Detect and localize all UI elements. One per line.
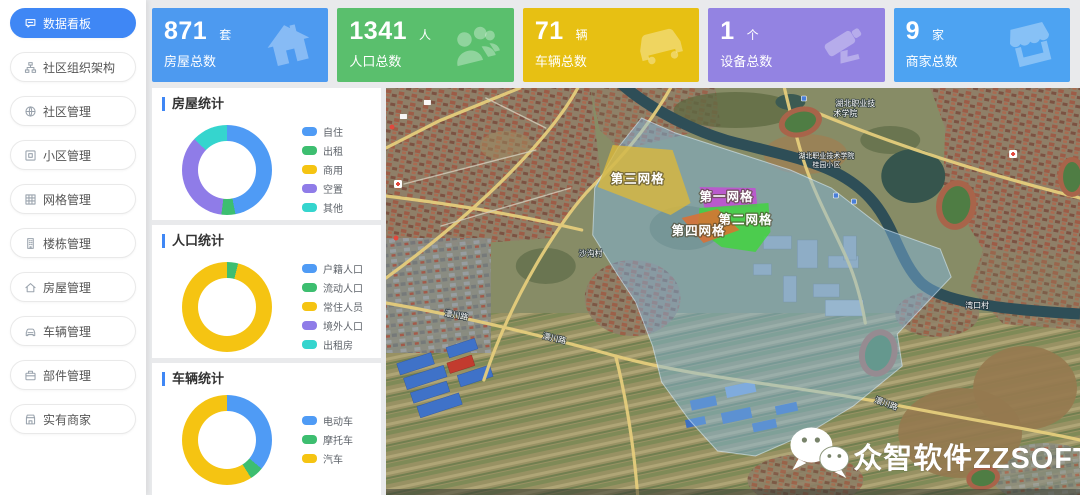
panel-title: 车辆统计 <box>162 372 371 386</box>
grid-icon <box>24 193 37 206</box>
stat-card-devices: 1个 设备总数 <box>708 8 884 82</box>
sidebar-item-label: 网格管理 <box>43 191 91 208</box>
place-label: 术学院 <box>833 108 857 118</box>
legend-swatch <box>302 146 317 155</box>
vehicle-legend: 电动车摩托车汽车 <box>302 409 353 470</box>
stat-value: 1341 <box>349 17 407 46</box>
legend-swatch <box>302 127 317 136</box>
legend-swatch <box>302 165 317 174</box>
component-icon <box>24 369 37 382</box>
poi-marker[interactable] <box>393 236 398 241</box>
poi-marker[interactable] <box>851 199 856 204</box>
sidebar-item-label: 房屋管理 <box>43 279 91 296</box>
legend-label: 出租房 <box>323 337 353 352</box>
panel-housing-stats: 房屋统计 自住出租商用空置其他 <box>152 88 381 220</box>
stat-value: 1 <box>720 17 734 46</box>
housing-donut-chart[interactable] <box>182 125 272 215</box>
stat-card-population: 1341人 人口总数 <box>337 8 513 82</box>
legend-swatch <box>302 340 317 349</box>
main: 871套 房屋总数 1341人 人口总数 71辆 车辆总数 1个 设备总数 9家… <box>146 0 1080 495</box>
sidebar-item-building[interactable]: 楼栋管理 <box>10 228 136 258</box>
stat-card-vehicles: 71辆 车辆总数 <box>523 8 699 82</box>
legend-label: 摩托车 <box>323 432 353 447</box>
place-label: 沙沟村 <box>579 248 603 258</box>
sidebar-item-component[interactable]: 部件管理 <box>10 360 136 390</box>
legend-item[interactable]: 汽车 <box>302 451 353 466</box>
sidebar-item-label: 数据看板 <box>43 15 91 32</box>
sidebar-item-estate[interactable]: 小区管理 <box>10 140 136 170</box>
legend-item[interactable]: 商用 <box>302 162 343 177</box>
legend-label: 出租 <box>323 143 343 158</box>
grid-label-4: 第四网格 <box>672 223 726 238</box>
legend-item[interactable]: 境外人口 <box>302 318 363 333</box>
legend-swatch <box>302 203 317 212</box>
legend-label: 自住 <box>323 124 343 139</box>
dashboard-icon <box>24 17 37 30</box>
population-legend: 户籍人口流动人口常住人员境外人口出租房 <box>302 257 363 356</box>
grid-label-2: 第二网格 <box>719 212 773 227</box>
legend-item[interactable]: 常住人员 <box>302 299 363 314</box>
org-structure-icon <box>24 61 37 74</box>
legend-item[interactable]: 自住 <box>302 124 343 139</box>
map-container[interactable]: 第三网格 第一网格 第二网格 第四网格 <box>386 88 1080 495</box>
vehicle-donut-chart[interactable] <box>182 395 272 485</box>
sidebar-item-dashboard[interactable]: 数据看板 <box>10 8 136 38</box>
sidebar-item-label: 部件管理 <box>43 367 91 384</box>
sidebar-item-merchant[interactable]: 实有商家 <box>10 404 136 434</box>
hospital-marker[interactable] <box>1009 150 1017 158</box>
legend-item[interactable]: 出租房 <box>302 337 363 352</box>
estate-icon <box>24 149 37 162</box>
content: 房屋统计 自住出租商用空置其他 人口统计 户籍人口流动人口常住人员境外人口出租房… <box>152 88 1080 495</box>
sidebar-item-label: 社区管理 <box>43 103 91 120</box>
grid-label-3: 第三网格 <box>611 171 665 186</box>
legend-label: 常住人员 <box>323 299 363 314</box>
legend-label: 其他 <box>323 200 343 215</box>
legend-label: 商用 <box>323 162 343 177</box>
stat-unit: 个 <box>747 26 759 43</box>
poi-marker[interactable] <box>833 193 838 198</box>
legend-item[interactable]: 出租 <box>302 143 343 158</box>
legend-swatch <box>302 416 317 425</box>
legend-swatch <box>302 454 317 463</box>
legend-label: 户籍人口 <box>323 261 363 276</box>
stat-value: 71 <box>535 17 564 46</box>
stat-value: 9 <box>906 17 920 46</box>
place-label: 桂园小区 <box>812 160 840 169</box>
panel-title: 人口统计 <box>162 234 371 248</box>
legend-swatch <box>302 264 317 273</box>
sidebar-item-label: 社区组织架构 <box>43 59 115 76</box>
legend-swatch <box>302 321 317 330</box>
stat-unit: 人 <box>419 26 431 43</box>
stat-unit: 套 <box>219 26 231 43</box>
legend-swatch <box>302 302 317 311</box>
stat-card-merchants: 9家 商家总数 <box>894 8 1070 82</box>
legend-label: 电动车 <box>323 413 353 428</box>
map-edge-shadow <box>386 489 1080 495</box>
legend-item[interactable]: 流动人口 <box>302 280 363 295</box>
poi-marker[interactable] <box>389 125 394 130</box>
building-icon <box>24 237 37 250</box>
place-label: 湖北职业技 <box>835 98 875 108</box>
hospital-marker[interactable] <box>394 180 402 188</box>
legend-swatch <box>302 184 317 193</box>
poi-marker[interactable] <box>801 96 806 101</box>
merchant-icon <box>24 413 37 426</box>
stat-cards: 871套 房屋总数 1341人 人口总数 71辆 车辆总数 1个 设备总数 9家… <box>152 8 1070 82</box>
legend-item[interactable]: 空置 <box>302 181 343 196</box>
poi-marker[interactable] <box>400 114 407 119</box>
sidebar-item-label: 小区管理 <box>43 147 91 164</box>
legend-swatch <box>302 283 317 292</box>
legend-item[interactable]: 户籍人口 <box>302 261 363 276</box>
map-svg: 第三网格 第一网格 第二网格 第四网格 <box>386 88 1080 495</box>
sidebar-item-label: 实有商家 <box>43 411 91 428</box>
house-icon <box>24 281 37 294</box>
sidebar-item-vehicle[interactable]: 车辆管理 <box>10 316 136 346</box>
poi-marker[interactable] <box>424 100 431 105</box>
place-label: 湖北职业技术学院 <box>798 151 854 160</box>
vehicle-icon <box>24 325 37 338</box>
sidebar-item-label: 车辆管理 <box>43 323 91 340</box>
panel-vehicle-stats: 车辆统计 电动车摩托车汽车 <box>152 363 381 495</box>
stat-unit: 家 <box>932 26 944 43</box>
sidebar-item-label: 楼栋管理 <box>43 235 91 252</box>
population-donut-chart[interactable] <box>182 262 272 352</box>
legend-label: 境外人口 <box>323 318 363 333</box>
grid-label-1: 第一网格 <box>700 189 754 204</box>
panel-title: 房屋统计 <box>162 97 371 111</box>
chart-panels: 房屋统计 自住出租商用空置其他 人口统计 户籍人口流动人口常住人员境外人口出租房… <box>152 88 381 495</box>
legend-swatch <box>302 435 317 444</box>
legend-label: 空置 <box>323 181 343 196</box>
place-label: 湾口村 <box>965 300 989 310</box>
legend-label: 汽车 <box>323 451 343 466</box>
housing-legend: 自住出租商用空置其他 <box>302 120 343 219</box>
stat-value: 871 <box>164 17 207 46</box>
panel-population-stats: 人口统计 户籍人口流动人口常住人员境外人口出租房 <box>152 225 381 357</box>
sidebar-item-community[interactable]: 社区管理 <box>10 96 136 126</box>
watermark-text: 众智软件ZZSOFT <box>853 442 1080 475</box>
sidebar-item-org[interactable]: 社区组织架构 <box>10 52 136 82</box>
stat-unit: 辆 <box>576 26 588 43</box>
community-icon <box>24 105 37 118</box>
sidebar-item-grid[interactable]: 网格管理 <box>10 184 136 214</box>
legend-item[interactable]: 电动车 <box>302 413 353 428</box>
stat-card-housing: 871套 房屋总数 <box>152 8 328 82</box>
legend-item[interactable]: 摩托车 <box>302 432 353 447</box>
sidebar-item-house[interactable]: 房屋管理 <box>10 272 136 302</box>
legend-item[interactable]: 其他 <box>302 200 343 215</box>
legend-label: 流动人口 <box>323 280 363 295</box>
sidebar: 数据看板社区组织架构社区管理小区管理网格管理楼栋管理房屋管理车辆管理部件管理实有… <box>0 0 146 495</box>
